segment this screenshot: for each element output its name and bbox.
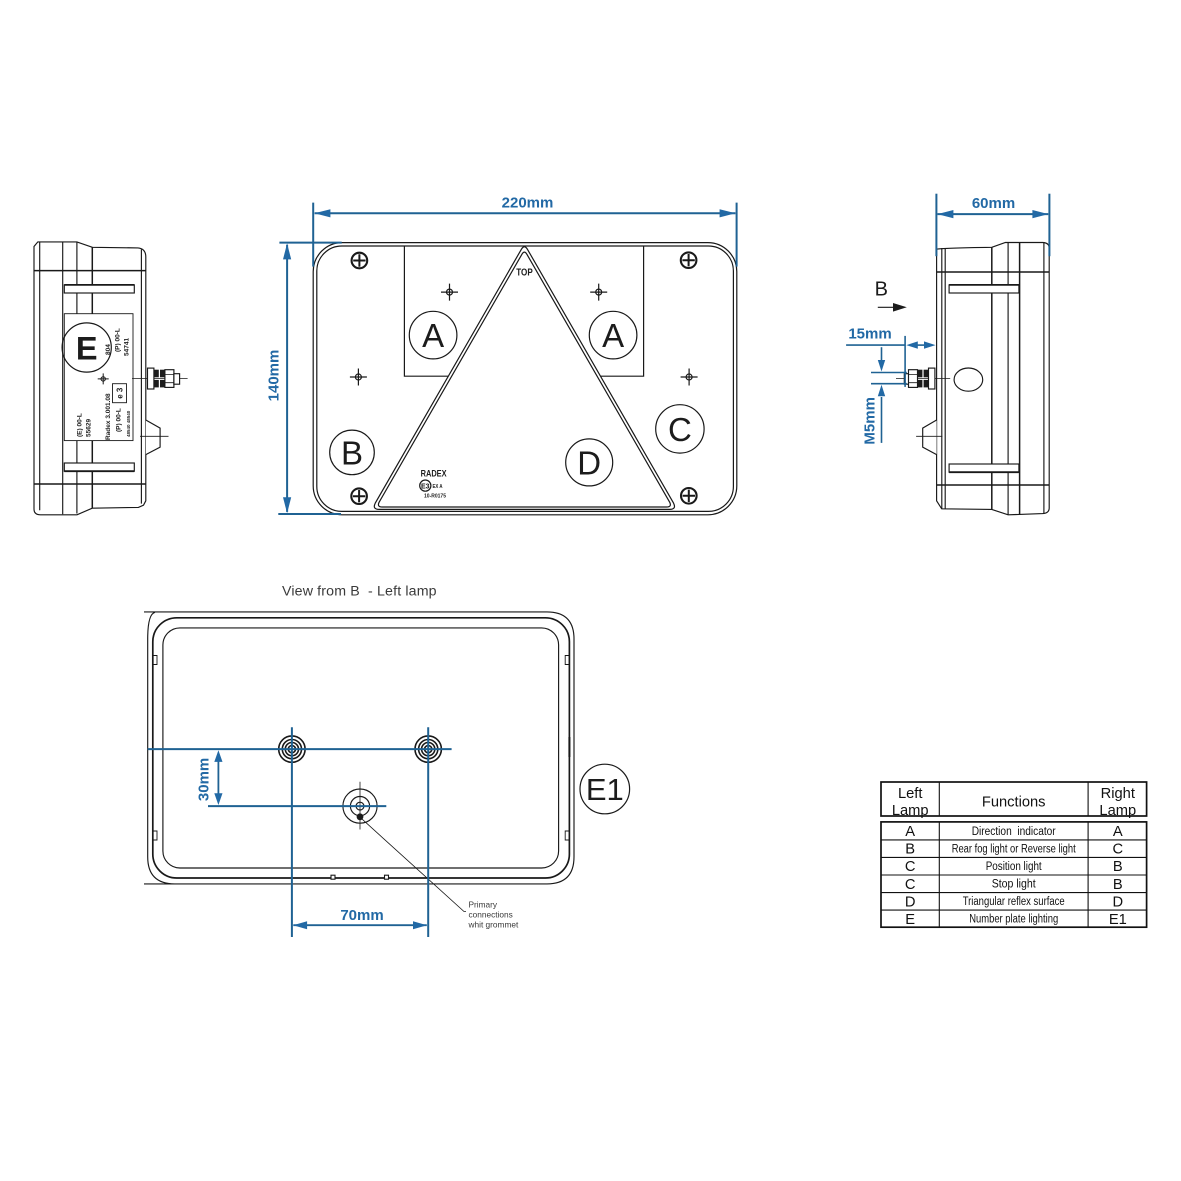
svg-text:A: A (905, 824, 915, 840)
svg-text:Functions: Functions (982, 794, 1046, 810)
svg-text:70mm: 70mm (340, 907, 383, 924)
svg-text:Radex 3.001.08: Radex 3.001.08 (105, 393, 112, 440)
svg-text:A: A (422, 317, 444, 354)
svg-text:B: B (341, 434, 363, 471)
svg-text:D: D (1112, 894, 1123, 910)
svg-text:Right: Right (1101, 786, 1135, 802)
svg-text:C: C (905, 859, 916, 875)
svg-text:Direction indicator: Direction indicator (972, 826, 1056, 838)
svg-text:A: A (1113, 824, 1123, 840)
svg-text:e 3: e 3 (116, 387, 125, 399)
svg-text:(E) 00-L: (E) 00-L (77, 413, 84, 437)
svg-text:B: B (905, 842, 915, 858)
svg-text:C: C (668, 411, 692, 448)
svg-text:Stop light: Stop light (992, 879, 1037, 891)
svg-text:A: A (602, 317, 624, 354)
svg-text:B: B (1113, 859, 1123, 875)
svg-text:Position light: Position light (986, 861, 1043, 873)
svg-text:220mm: 220mm (502, 194, 554, 211)
svg-text:whit grommet: whit grommet (468, 920, 519, 930)
svg-text:Primary: Primary (469, 900, 498, 910)
svg-text:E: E (76, 330, 98, 366)
svg-text:E3: E3 (421, 483, 430, 490)
svg-text:140mm: 140mm (266, 350, 283, 402)
svg-text:15mm: 15mm (848, 326, 891, 343)
svg-text:30mm: 30mm (196, 758, 213, 801)
svg-text:M5mm: M5mm (862, 397, 879, 445)
svg-text:Lamp: Lamp (892, 803, 929, 819)
svg-text:E: E (905, 912, 915, 928)
svg-text:Number plate lighting: Number plate lighting (969, 914, 1058, 926)
svg-text:E1: E1 (1109, 912, 1127, 928)
svg-text:804: 804 (105, 344, 112, 355)
svg-text:TOP: TOP (516, 268, 533, 279)
svg-text:EX A: EX A (433, 484, 443, 490)
svg-text:48540 48540: 48540 48540 (126, 410, 131, 437)
svg-text:C: C (1112, 842, 1123, 858)
svg-text:RADEX: RADEX (421, 468, 448, 479)
svg-text:D: D (905, 894, 916, 910)
svg-text:C: C (905, 877, 916, 893)
svg-text:E1: E1 (586, 772, 624, 807)
svg-text:D: D (577, 444, 601, 481)
svg-text:55629: 55629 (86, 419, 93, 437)
svg-text:B: B (1113, 877, 1123, 893)
svg-text:Left: Left (898, 786, 923, 802)
svg-text:View from B - Left lamp: View from B - Left lamp (282, 583, 437, 599)
svg-text:B: B (875, 279, 888, 301)
svg-text:(P) 00-L: (P) 00-L (115, 328, 122, 352)
svg-text:Rear fog light or Reverse ligh: Rear fog light or Reverse light (952, 844, 1077, 856)
svg-text:60mm: 60mm (972, 195, 1015, 212)
svg-text:Triangular reflex surface: Triangular reflex surface (963, 896, 1065, 908)
svg-text:Lamp: Lamp (1099, 803, 1136, 819)
svg-text:54741: 54741 (124, 338, 131, 356)
svg-text:connections: connections (469, 910, 513, 920)
svg-text:10-R0175: 10-R0175 (424, 494, 446, 500)
svg-text:(P) 00-L: (P) 00-L (116, 408, 123, 432)
